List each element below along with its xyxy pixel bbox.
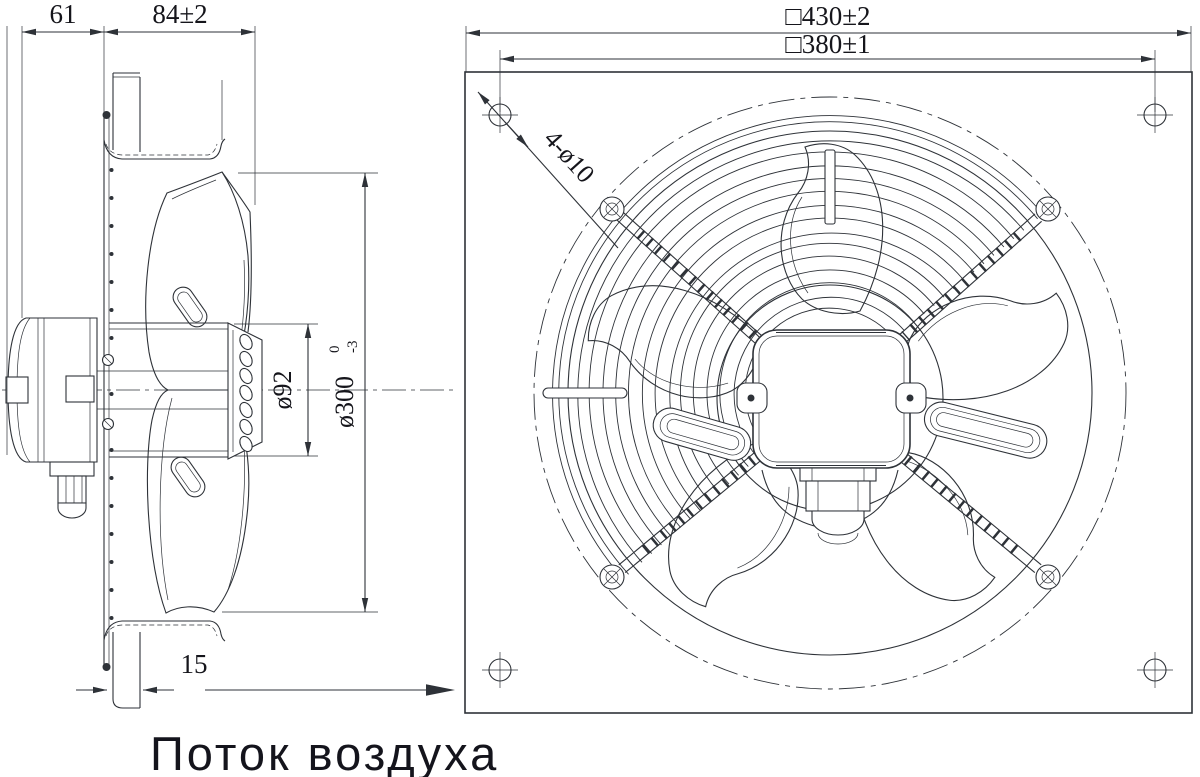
plate-weld-dots <box>110 168 114 620</box>
plate-rivet <box>103 663 111 671</box>
bell-mouth-bottom <box>104 621 225 641</box>
blade-tip-edge <box>543 388 627 398</box>
airflow-caption: Поток воздуха <box>150 727 499 777</box>
dim-61: 61 <box>50 0 77 29</box>
junction-box-body <box>753 330 910 468</box>
airflow-arrow <box>205 684 455 696</box>
blade-edge-slot <box>825 150 835 224</box>
flange-top <box>104 73 225 159</box>
fan-technical-drawing: 61 84±2 ø92 ø300 0 -3 15 <box>0 0 1200 777</box>
dim-d300-tol-upper: 0 <box>327 346 343 354</box>
bell-mouth-top <box>104 139 225 159</box>
cable-gland-side <box>50 462 94 518</box>
dim-d300-value: ø300 <box>330 376 359 428</box>
dim-d92: ø92 <box>268 371 297 410</box>
dim-d300: ø300 0 -3 <box>327 341 361 429</box>
motor-lug <box>66 376 94 402</box>
dim-d300-tol-lower: -3 <box>345 341 361 354</box>
dim-15: 15 <box>181 649 208 679</box>
drawing-canvas: 61 84±2 ø92 ø300 0 -3 15 <box>0 0 1200 777</box>
dim-380: □380±1 <box>785 29 870 59</box>
motor-lug <box>6 377 28 403</box>
dim-430: □430±2 <box>785 1 870 31</box>
dim-84: 84±2 <box>152 0 207 29</box>
motor <box>6 318 97 518</box>
side-view: 61 84±2 ø92 ø300 0 -3 15 <box>2 0 458 708</box>
front-view: 4-ø10 □430±2 □380±1 <box>465 1 1192 713</box>
